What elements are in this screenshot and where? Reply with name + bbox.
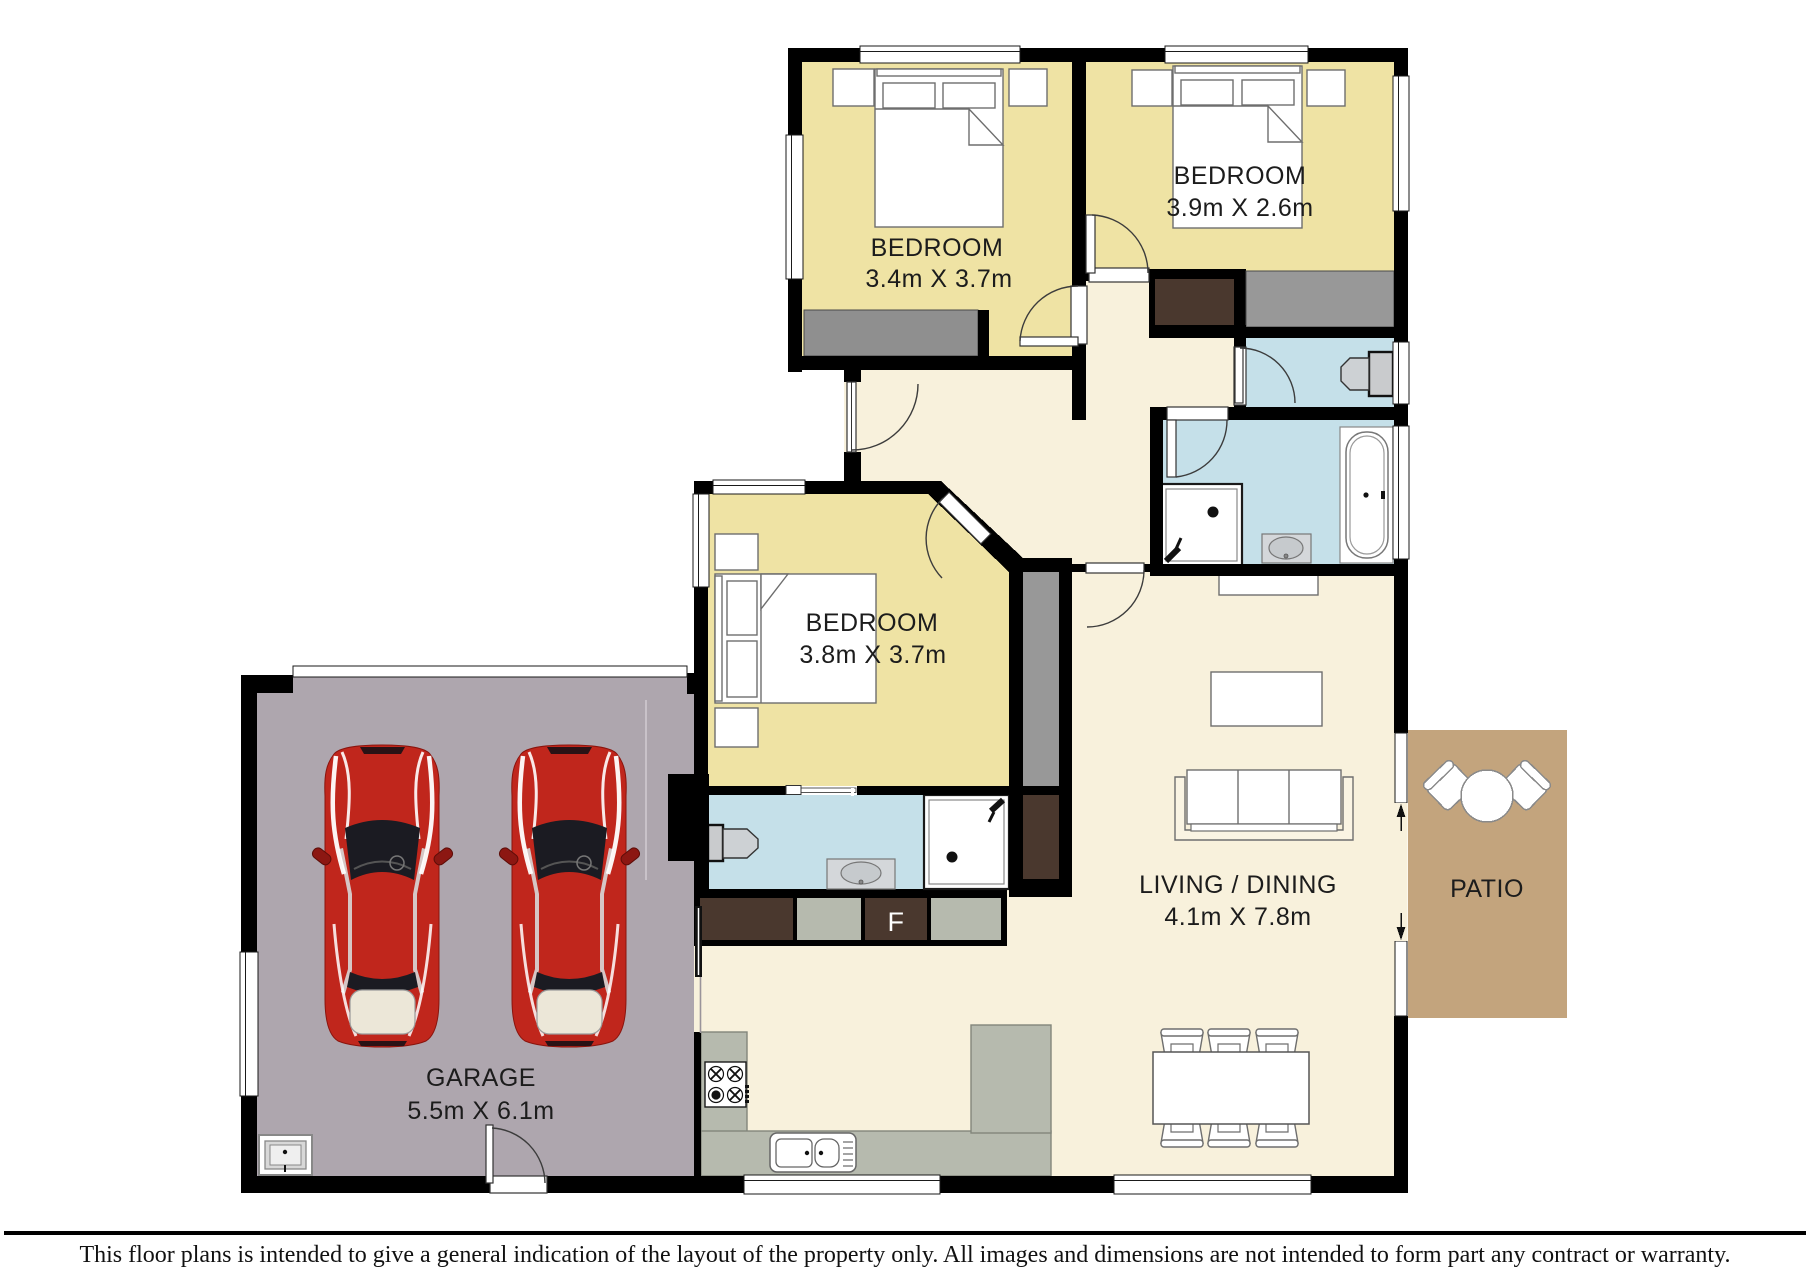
- svg-text:BEDROOM: BEDROOM: [1174, 162, 1307, 190]
- svg-text:F: F: [888, 907, 905, 937]
- svg-text:5.5m X 6.1m: 5.5m X 6.1m: [407, 1097, 554, 1125]
- svg-text:BEDROOM: BEDROOM: [806, 609, 939, 637]
- svg-text:LIVING / DINING: LIVING / DINING: [1139, 871, 1337, 899]
- svg-text:PATIO: PATIO: [1450, 875, 1524, 903]
- svg-text:4.1m X 7.8m: 4.1m X 7.8m: [1164, 903, 1311, 931]
- svg-text:3.8m X 3.7m: 3.8m X 3.7m: [799, 641, 946, 669]
- svg-text:This floor plans is intended t: This floor plans is intended to give a g…: [79, 1242, 1730, 1268]
- svg-text:GARAGE: GARAGE: [426, 1064, 536, 1092]
- svg-text:3.9m X 2.6m: 3.9m X 2.6m: [1166, 194, 1313, 222]
- svg-text:3.4m X 3.7m: 3.4m X 3.7m: [865, 265, 1012, 293]
- svg-text:BEDROOM: BEDROOM: [871, 234, 1004, 262]
